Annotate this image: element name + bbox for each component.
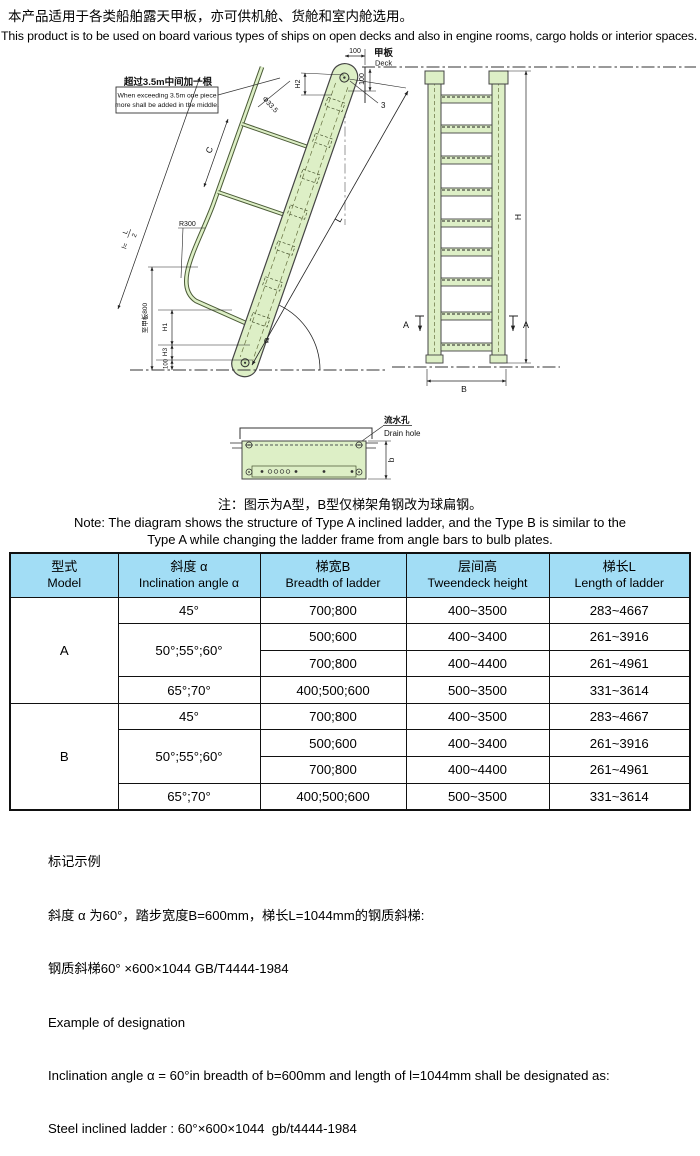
ladder-drawing-svg: 超过3.5m中间加一根 When exceeding 3.5m one piec… bbox=[0, 45, 700, 495]
foot-right bbox=[490, 355, 507, 363]
stanchion-upper-fill bbox=[242, 124, 308, 147]
table-row: A 45° 700;800 400~3500 283~4667 bbox=[10, 597, 690, 624]
header-row: 型式Model 斜度 αInclination angle α 梯宽BBread… bbox=[10, 553, 690, 598]
foot-left bbox=[426, 355, 443, 363]
example-zh-line1: 斜度 α 为60°，踏步宽度B=600mm，梯长L=1044mm的钢质斜梯: bbox=[48, 907, 700, 925]
svg-text:l=: l= bbox=[121, 242, 130, 250]
top-bracket-left bbox=[425, 71, 444, 84]
note-en-line2: Type A while changing the ladder frame f… bbox=[0, 531, 700, 549]
breadth-cell: 500;600 bbox=[260, 624, 406, 651]
table-row: B 45° 700;800 400~3500 283~4667 bbox=[10, 703, 690, 730]
callout-en2: more shall be added in the middle. bbox=[115, 102, 219, 109]
deck-label-en: Deck bbox=[375, 59, 392, 68]
dim-label-l: L bbox=[333, 215, 344, 224]
dim-label-alpha: α bbox=[264, 335, 270, 345]
drain-label-en: Drain hole bbox=[384, 429, 421, 438]
section-mark-left: A bbox=[403, 316, 424, 331]
dim-label-pipe-dia: Φ33.5 bbox=[261, 96, 279, 115]
length-cell: 261~4961 bbox=[549, 650, 690, 677]
angle-cell: 50°;55°;60° bbox=[118, 730, 260, 783]
col-header-breadth: 梯宽BBreadth of ladder bbox=[260, 553, 406, 598]
technical-drawing: 超过3.5m中间加一根 When exceeding 3.5m one piec… bbox=[0, 45, 700, 495]
breadth-cell: 700;800 bbox=[260, 757, 406, 784]
tweendeck-cell: 400~3400 bbox=[406, 624, 549, 651]
dim-label-h3: H3 bbox=[162, 347, 169, 356]
example-zh-line2: 钢质斜梯60° ×600×1044 GB/T4444-1984 bbox=[48, 960, 700, 978]
dim-label-todeck800: 至甲板800 bbox=[140, 302, 149, 333]
dim-label-3: 3 bbox=[381, 101, 386, 110]
tweendeck-cell: 400~4400 bbox=[406, 757, 549, 784]
model-b-cell: B bbox=[10, 703, 118, 809]
breadth-cell: 400;500;600 bbox=[260, 783, 406, 810]
dim-label-h: H bbox=[513, 214, 523, 220]
spec-table: 型式Model 斜度 αInclination angle α 梯宽BBread… bbox=[9, 552, 691, 811]
dim-label-h2: H2 bbox=[295, 79, 302, 88]
front-view: H A A B bbox=[392, 71, 560, 394]
callout-en1: When exceeding 3.5m one piece bbox=[118, 93, 217, 100]
length-cell: 283~4667 bbox=[549, 597, 690, 624]
angle-cell: 65°;70° bbox=[118, 783, 260, 810]
angle-cell: 50°;55°;60° bbox=[118, 624, 260, 677]
dim-label-deck100: 100 bbox=[359, 73, 366, 85]
dim-label-b-section: b bbox=[386, 457, 396, 462]
breadth-cell: 700;800 bbox=[260, 597, 406, 624]
top-bracket-right bbox=[489, 71, 508, 84]
rungs bbox=[441, 95, 492, 351]
angle-cell: 45° bbox=[118, 597, 260, 624]
length-cell: 331~3614 bbox=[549, 677, 690, 704]
col-header-length: 梯长LLength of ladder bbox=[549, 553, 690, 598]
note-zh: 注：图示为A型，B型仅梯架角钢改为球扁钢。 bbox=[0, 496, 700, 514]
side-view: 超过3.5m中间加一根 When exceeding 3.5m one piec… bbox=[115, 47, 696, 380]
intro-text-en: This product is to be used on board vari… bbox=[1, 29, 700, 43]
breadth-cell: 400;500;600 bbox=[260, 677, 406, 704]
tweendeck-cell: 400~3500 bbox=[406, 597, 549, 624]
tweendeck-cell: 400~3400 bbox=[406, 730, 549, 757]
dim-label-r300: R300 bbox=[179, 221, 196, 228]
drain-label-zh: 流水孔 bbox=[384, 415, 410, 425]
breadth-cell: 500;600 bbox=[260, 730, 406, 757]
dim-label-top100: 100 bbox=[349, 48, 361, 55]
length-cell: 283~4667 bbox=[549, 703, 690, 730]
col-header-model: 型式Model bbox=[10, 553, 118, 598]
dim-label-c: C bbox=[203, 145, 214, 154]
tread-body bbox=[242, 441, 366, 479]
angle-cell: 65°;70° bbox=[118, 677, 260, 704]
tread-top-outline bbox=[240, 428, 372, 439]
section-label-a-left: A bbox=[403, 320, 409, 330]
example-title-en: Example of designation bbox=[48, 1014, 700, 1032]
tweendeck-cell: 400~3500 bbox=[406, 703, 549, 730]
dim-label-b: B bbox=[461, 384, 467, 394]
example-en-line1: Inclination angle α = 60°in breadth of b… bbox=[48, 1067, 700, 1085]
section-view: b 流水孔 Drain hole bbox=[230, 415, 421, 479]
model-a-cell: A bbox=[10, 597, 118, 703]
length-cell: 261~3916 bbox=[549, 624, 690, 651]
breadth-cell: 700;800 bbox=[260, 703, 406, 730]
dim-label-bottom100: 100 bbox=[164, 358, 170, 369]
angle-arc bbox=[280, 305, 321, 370]
note-en-line1: Note: The diagram shows the structure of… bbox=[0, 514, 700, 532]
callout-zh: 超过3.5m中间加一根 bbox=[123, 76, 213, 88]
deck-label-zh: 甲板 bbox=[374, 47, 394, 59]
dim-label-h1: H1 bbox=[162, 322, 169, 331]
dim-label-l-half: l= L 2 bbox=[117, 227, 140, 252]
example-en-line2: Steel inclined ladder : 60°×600×1044 gb/… bbox=[48, 1120, 700, 1138]
example-title-zh: 标记示例 bbox=[48, 853, 700, 871]
note-block: 注：图示为A型，B型仅梯架角钢改为球扁钢。 Note: The diagram … bbox=[0, 496, 700, 549]
col-header-tweendeck: 层间高Tweendeck height bbox=[406, 553, 549, 598]
tweendeck-cell: 400~4400 bbox=[406, 650, 549, 677]
length-cell: 261~3916 bbox=[549, 730, 690, 757]
length-cell: 331~3614 bbox=[549, 783, 690, 810]
angle-cell: 45° bbox=[118, 703, 260, 730]
length-cell: 261~4961 bbox=[549, 757, 690, 784]
stanchion-lower-fill bbox=[218, 192, 285, 215]
col-header-inclination: 斜度 αInclination angle α bbox=[118, 553, 260, 598]
intro-text-zh: 本产品适用于各类船舶露天甲板，亦可供机舱、货舱和室内舱选用。 bbox=[8, 5, 700, 25]
tweendeck-cell: 500~3500 bbox=[406, 677, 549, 704]
svg-text:2: 2 bbox=[131, 232, 139, 238]
designation-example: 标记示例 斜度 α 为60°，踏步宽度B=600mm，梯长L=1044mm的钢质… bbox=[48, 818, 700, 1156]
section-label-a-right: A bbox=[523, 320, 529, 330]
breadth-cell: 700;800 bbox=[260, 650, 406, 677]
tweendeck-cell: 500~3500 bbox=[406, 783, 549, 810]
